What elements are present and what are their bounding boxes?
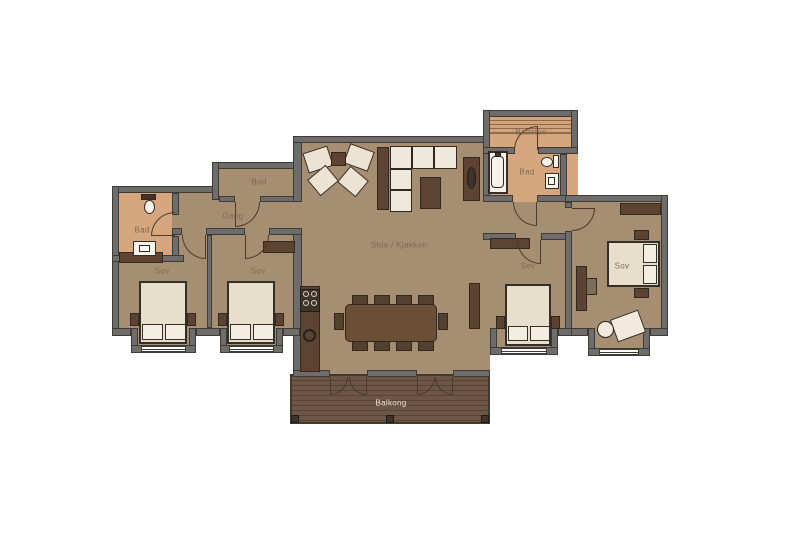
window [229, 346, 274, 352]
round-table-icon [597, 321, 614, 338]
burner-icon [303, 300, 309, 306]
wall-segment [283, 328, 300, 336]
pillow-icon [253, 324, 274, 340]
dining-chair-icon [418, 341, 434, 351]
room-label-badstue: Badstue [515, 128, 546, 137]
kitchen-sink-icon [303, 329, 316, 342]
room-label-gang: Gang [223, 212, 244, 221]
room-label-bad-right: Bad [519, 168, 534, 177]
burner-icon [311, 291, 317, 297]
dining-chair-icon [352, 341, 368, 351]
room-label-bad-left: Bad [134, 226, 149, 235]
wall-segment [219, 196, 235, 202]
sink-basin-icon [548, 177, 555, 185]
wall-segment [269, 228, 302, 235]
room-label-sov-left-1: Sov [155, 267, 170, 276]
side-table-icon [331, 152, 346, 166]
room-label-sov-right: Sov [615, 262, 630, 271]
wall-segment [483, 195, 513, 202]
nightstand-icon [275, 313, 284, 326]
wall-segment [206, 228, 245, 235]
wall-segment [565, 231, 572, 336]
wall-segment [661, 195, 668, 336]
nightstand-icon [634, 288, 649, 298]
wall-segment [588, 328, 595, 350]
balcony-post [291, 415, 299, 423]
fireplace-door-icon [467, 167, 476, 189]
pillow-icon [508, 326, 528, 341]
balcony-post [481, 415, 489, 423]
coffee-table-icon [420, 177, 441, 209]
pillow-icon [142, 324, 163, 340]
toilet-icon [541, 157, 553, 167]
pillow-icon [643, 265, 657, 284]
sofa-icon [412, 146, 434, 169]
sofa-icon [434, 146, 457, 169]
wall-segment [565, 202, 572, 208]
nightstand-icon [130, 313, 139, 326]
balcony-post [386, 415, 394, 423]
wall-segment [558, 328, 572, 336]
burner-icon [303, 291, 309, 297]
window [599, 349, 639, 355]
room-label-bod: Bod [251, 178, 266, 187]
wall-segment [293, 136, 490, 143]
wall-segment [565, 195, 668, 202]
toilet-tank-icon [553, 155, 559, 168]
nightstand-icon [187, 313, 196, 326]
pillow-icon [530, 326, 550, 341]
wall-segment [490, 328, 497, 349]
room-label-balkong: Balkong [375, 399, 406, 408]
wall-segment [293, 136, 302, 202]
room-label-stue-kjokken: Stue / Kjøkken [371, 241, 427, 250]
wall-segment [551, 328, 558, 349]
wall-segment [196, 328, 220, 336]
wall-segment [538, 147, 578, 154]
wall-segment [212, 162, 302, 169]
floor-plan: Bod Gang Bad Sov Sov Stue / Kjøkken Bads… [0, 0, 785, 555]
nightstand-icon [551, 316, 560, 329]
wall-segment [112, 328, 131, 336]
wall-segment [207, 235, 212, 328]
sofa-icon [390, 169, 412, 190]
tv-bench-icon [377, 147, 389, 210]
desk-chair-icon [586, 278, 597, 295]
dining-chair-icon [374, 341, 390, 351]
wall-segment [483, 110, 578, 117]
nightstand-icon [218, 313, 227, 326]
room-label-sov-mid: Sov [521, 262, 536, 271]
toilet-icon [144, 200, 155, 214]
wall-segment [650, 328, 668, 336]
sink-basin-icon [139, 245, 150, 252]
burner-icon [311, 300, 317, 306]
window [501, 348, 547, 354]
wall-segment [212, 162, 219, 200]
wardrobe-icon [620, 203, 661, 215]
dining-chair-icon [334, 313, 344, 330]
sofa-icon [390, 190, 412, 212]
faucet-icon [495, 152, 501, 157]
wall-segment [112, 186, 219, 193]
dining-table-icon [345, 304, 437, 342]
pillow-icon [165, 324, 186, 340]
pillow-icon [643, 244, 657, 263]
dining-chair-icon [438, 313, 448, 330]
wall-segment [537, 195, 567, 202]
window [141, 346, 186, 352]
nightstand-icon [496, 316, 505, 329]
room-label-sov-left-2: Sov [251, 267, 266, 276]
nightstand-icon [634, 230, 649, 240]
wall-segment [453, 370, 490, 377]
bathtub-basin-icon [491, 156, 504, 188]
dining-chair-icon [396, 341, 412, 351]
sideboard-icon [469, 283, 480, 329]
wall-segment [367, 370, 417, 377]
sofa-icon [390, 146, 412, 169]
wardrobe-icon [263, 241, 295, 253]
pillow-icon [230, 324, 251, 340]
